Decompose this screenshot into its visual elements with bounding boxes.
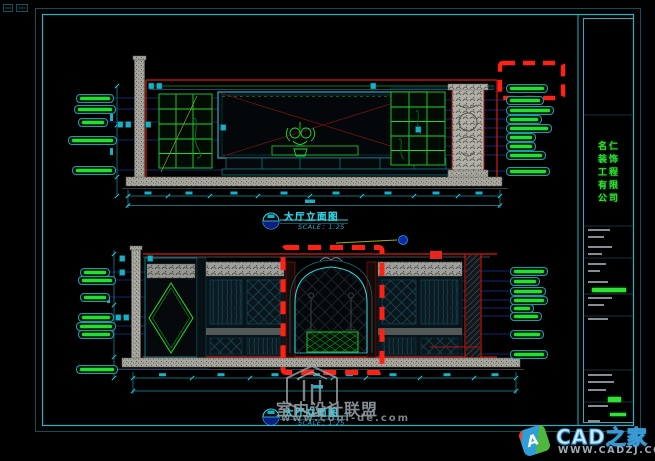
- left-paneling: [206, 262, 284, 356]
- diamond-door-panel: [145, 258, 197, 357]
- left-shelving-grid: [159, 94, 212, 168]
- tufted-bench: [307, 332, 358, 352]
- cad-sheet: 名仁装饰工程有限公司 大厅立面图 SCALE：1:25 大厅立面图 SCALE：…: [0, 0, 655, 461]
- carved-column: [448, 84, 488, 177]
- corner-mark: [4, 5, 28, 12]
- highlight-box-upper: [500, 63, 563, 98]
- watermark-site-url: www.cool-de.com: [281, 413, 410, 424]
- right-paneling: [378, 262, 462, 356]
- cadzj-url: WWW.CADZJ.COM: [558, 445, 655, 456]
- floor-hatch-lower: [122, 358, 520, 367]
- upper-elevation: [108, 56, 563, 229]
- floor-hatch-upper: [126, 177, 502, 186]
- callout-leader: [336, 240, 397, 243]
- upper-drawing-scale: SCALE：1:25: [298, 221, 345, 231]
- callout-circle: [399, 236, 408, 245]
- fireplace-arch: [286, 258, 376, 357]
- badge-letter: A: [524, 430, 541, 451]
